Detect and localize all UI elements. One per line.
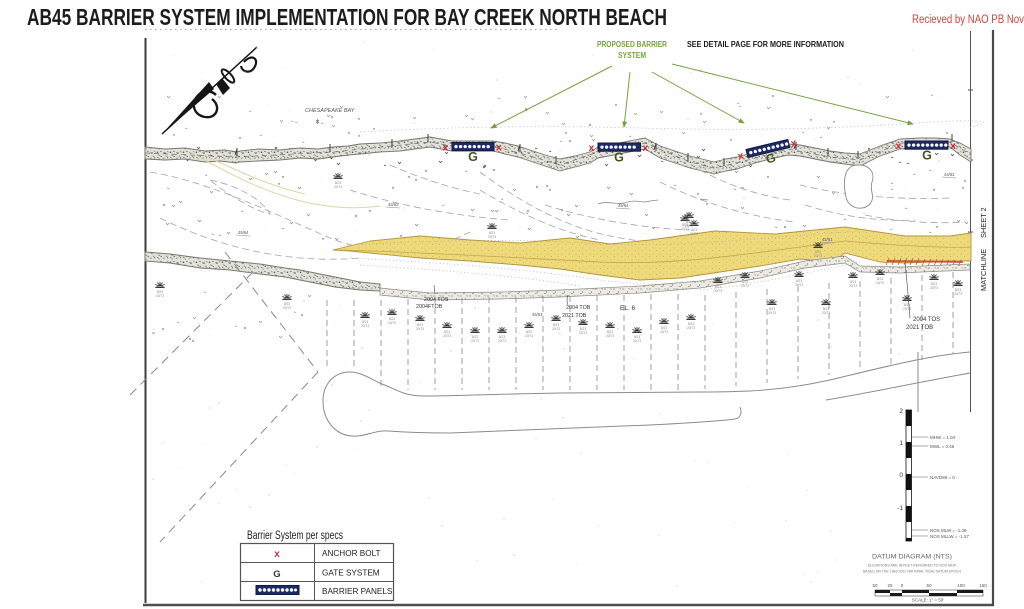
svg-text:43/62: 43/62	[388, 202, 399, 207]
svg-text:20/73: 20/73	[283, 306, 291, 310]
svg-text:20/73: 20/73	[822, 311, 830, 315]
svg-text:SYSTEM: SYSTEM	[618, 51, 646, 60]
svg-text:x: x	[443, 142, 449, 154]
svg-text:x: x	[274, 549, 280, 560]
svg-text:45/63: 45/63	[532, 312, 543, 317]
svg-text:DATUM DIAGRAM (NTS): DATUM DIAGRAM (NTS)	[872, 554, 952, 561]
svg-text:20/73: 20/73	[443, 334, 451, 338]
svg-text:BASED ON THE 1983-2001 NATIONA: BASED ON THE 1983-2001 NATIONAL TIDAL DA…	[863, 569, 961, 574]
svg-text:20/73: 20/73	[714, 289, 722, 293]
svg-text:MHW = 1.04: MHW = 1.04	[930, 435, 956, 440]
svg-text:G: G	[614, 151, 624, 165]
svg-text:x: x	[589, 142, 595, 154]
svg-text:20/73: 20/73	[768, 311, 776, 315]
svg-text:x: x	[643, 142, 649, 154]
svg-text:x: x	[896, 140, 902, 152]
svg-text:BARRIER PANELS: BARRIER PANELS	[322, 587, 393, 596]
svg-text:2021 TOB: 2021 TOB	[562, 313, 587, 319]
svg-text:Recieved by NAO PB Nov: Recieved by NAO PB Nov	[912, 14, 1024, 26]
svg-text:45/64: 45/64	[238, 230, 249, 235]
svg-text:20/73: 20/73	[814, 254, 822, 258]
svg-text:20/73: 20/73	[552, 327, 560, 331]
svg-text:20/73: 20/73	[361, 324, 369, 328]
svg-text:ANCHOR BOLT: ANCHOR BOLT	[322, 549, 381, 558]
svg-text:EL. 6: EL. 6	[620, 305, 636, 312]
svg-text:45/64: 45/64	[618, 203, 629, 208]
svg-text:100: 100	[957, 583, 965, 588]
svg-text:20/73: 20/73	[795, 283, 803, 287]
svg-text:CHESAPEAKE BAY: CHESAPEAKE BAY	[305, 108, 355, 114]
svg-text:44/63: 44/63	[944, 172, 955, 177]
svg-text:50: 50	[926, 583, 932, 588]
svg-text:20/73: 20/73	[930, 286, 938, 290]
svg-text:2004 TOS: 2004 TOS	[424, 297, 449, 303]
svg-text:SHEET 2: SHEET 2	[979, 207, 988, 238]
svg-text:25: 25	[887, 583, 893, 588]
svg-text:SCALE: 1" = 50': SCALE: 1" = 50'	[912, 598, 944, 603]
svg-text:20/73: 20/73	[334, 185, 342, 189]
svg-text:150: 150	[979, 583, 987, 588]
svg-text:G: G	[468, 150, 478, 164]
svg-text:2004 TOS: 2004 TOS	[913, 317, 940, 323]
svg-text:NOS MLW = -1.39: NOS MLW = -1.39	[930, 528, 967, 533]
svg-text:G: G	[922, 149, 932, 163]
svg-text:GATE SYSTEM: GATE SYSTEM	[322, 569, 380, 578]
svg-text:20/73: 20/73	[903, 307, 911, 311]
svg-text:-1: -1	[897, 505, 903, 512]
svg-text:Barrier System per specs: Barrier System per specs	[247, 530, 343, 542]
svg-text:20/73: 20/73	[876, 281, 884, 285]
svg-text:20/73: 20/73	[471, 339, 479, 343]
svg-text:SEE DETAIL PAGE FOR MORE INFOR: SEE DETAIL PAGE FOR MORE INFORMATION	[687, 40, 844, 49]
svg-text:20/73: 20/73	[525, 334, 533, 338]
svg-text:2004FTOB: 2004FTOB	[416, 304, 443, 310]
svg-text:20/73: 20/73	[660, 330, 668, 334]
svg-text:20/73: 20/73	[849, 284, 857, 288]
svg-text:20/73: 20/73	[741, 284, 749, 288]
svg-text:NAVD88 = 0: NAVD88 = 0	[930, 475, 955, 480]
svg-text:20/73: 20/73	[687, 326, 695, 330]
svg-text:MWL = 0.46: MWL = 0.46	[930, 444, 955, 449]
svg-text:2004 TOB: 2004 TOB	[566, 305, 591, 311]
svg-text:20/73: 20/73	[954, 292, 962, 296]
svg-text:20/73: 20/73	[156, 294, 164, 298]
svg-text:PROPOSED BARRIER: PROPOSED BARRIER	[597, 40, 667, 49]
svg-text:20/73: 20/73	[498, 339, 506, 343]
svg-text:42/61: 42/61	[822, 237, 833, 242]
svg-text:0: 0	[899, 472, 903, 479]
svg-text:2: 2	[899, 408, 903, 415]
svg-text:20/73: 20/73	[633, 339, 641, 343]
svg-text:20/73: 20/73	[690, 232, 698, 236]
svg-text:AB45 BARRIER SYSTEM IMPLEMENTA: AB45 BARRIER SYSTEM IMPLEMENTATION FOR B…	[27, 4, 667, 30]
svg-text:G: G	[273, 569, 280, 580]
svg-text:20/73: 20/73	[488, 235, 496, 239]
svg-text:ELEVATIONS ARE IN FEET REFERRE: ELEVATIONS ARE IN FEET REFERRED TO NOS M…	[868, 563, 956, 568]
svg-text:20/73: 20/73	[579, 331, 587, 335]
svg-text:x: x	[950, 140, 956, 152]
svg-text:20/73: 20/73	[606, 334, 614, 338]
svg-text:1: 1	[899, 440, 903, 447]
svg-text:2021 TOB: 2021 TOB	[906, 325, 933, 331]
svg-text:20/73: 20/73	[388, 321, 396, 325]
svg-text:x: x	[496, 142, 502, 154]
svg-text:MATCHLINE: MATCHLINE	[979, 249, 988, 291]
svg-text:50: 50	[872, 583, 878, 588]
svg-text:NOS MLLW = -1.57: NOS MLLW = -1.57	[930, 534, 970, 539]
svg-text:20/73: 20/73	[416, 327, 424, 331]
svg-text:20/73: 20/73	[685, 224, 693, 228]
